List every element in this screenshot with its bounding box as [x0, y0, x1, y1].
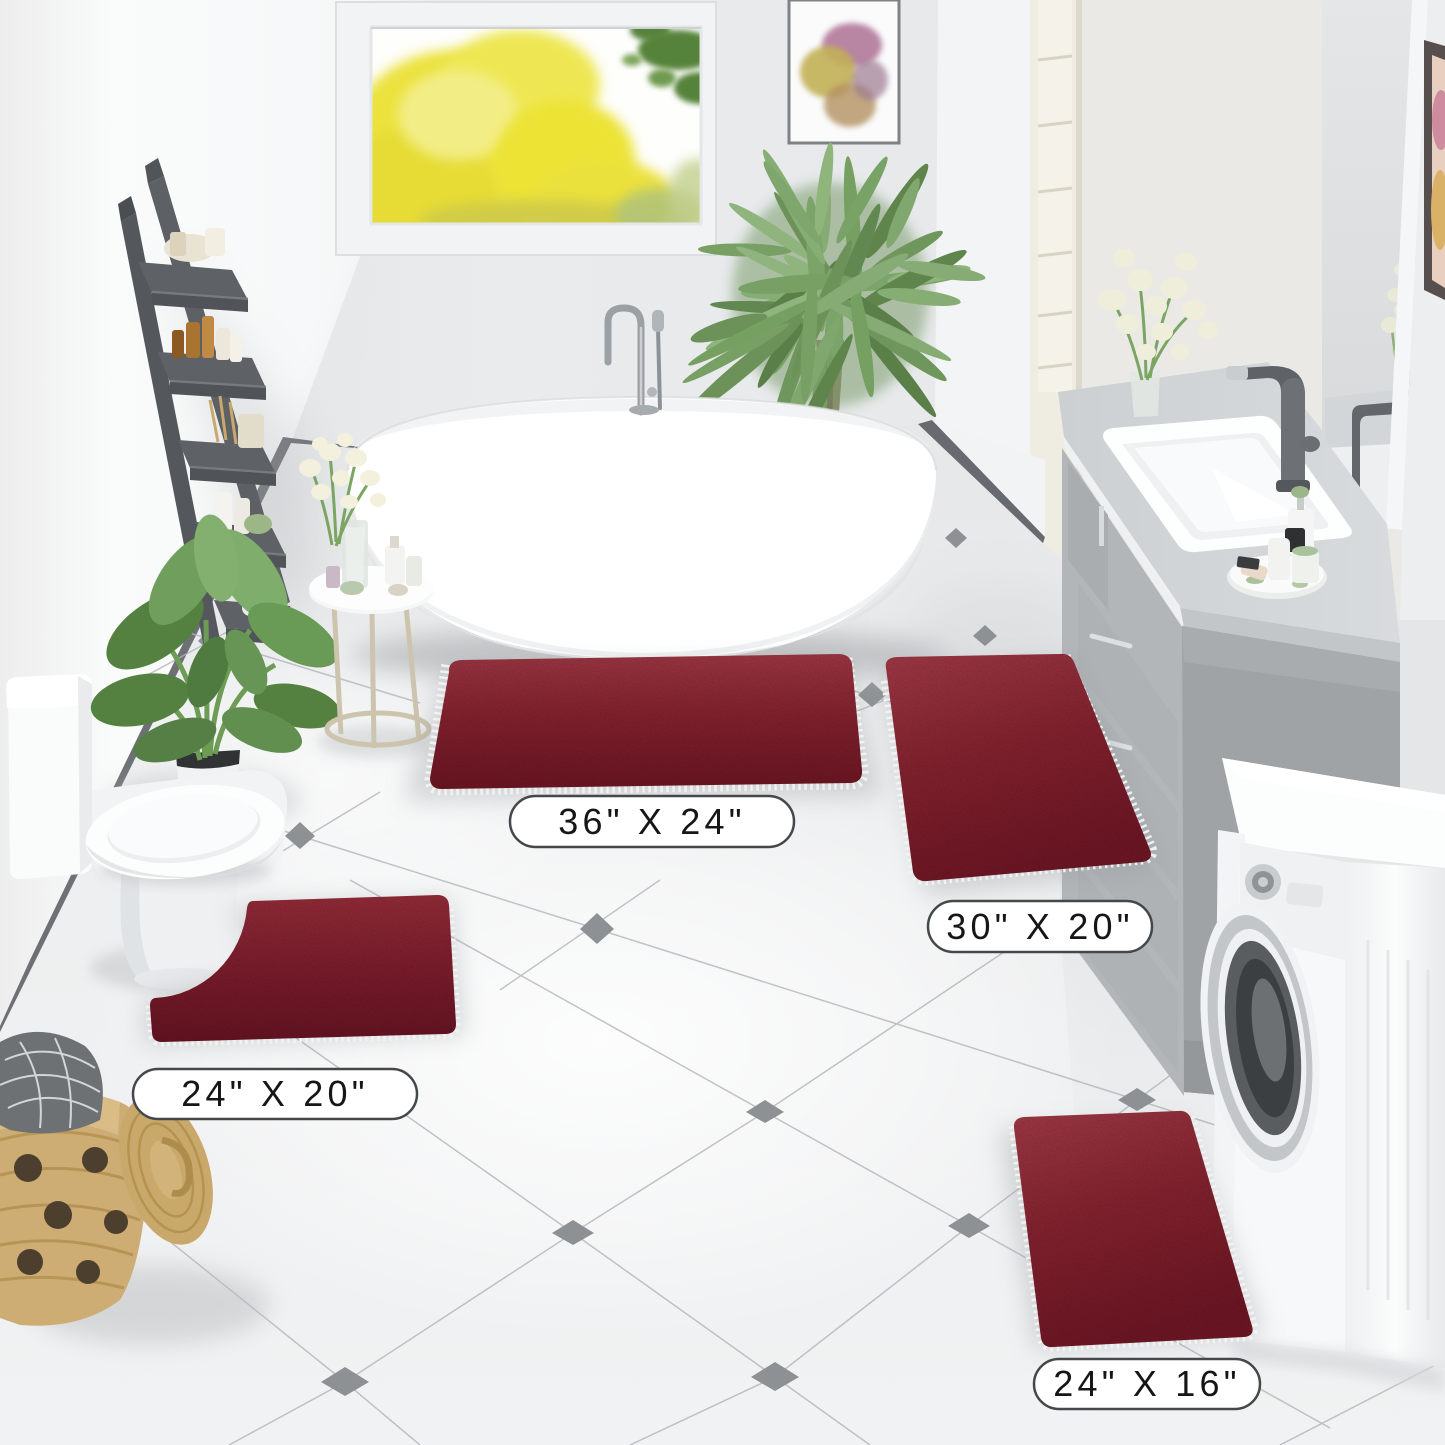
svg-text:30" X 20": 30" X 20" — [946, 906, 1133, 947]
svg-text:24" X 16": 24" X 16" — [1053, 1363, 1240, 1404]
svg-text:36" X 24": 36" X 24" — [558, 801, 745, 842]
svg-text:24" X 20": 24" X 20" — [181, 1073, 368, 1114]
